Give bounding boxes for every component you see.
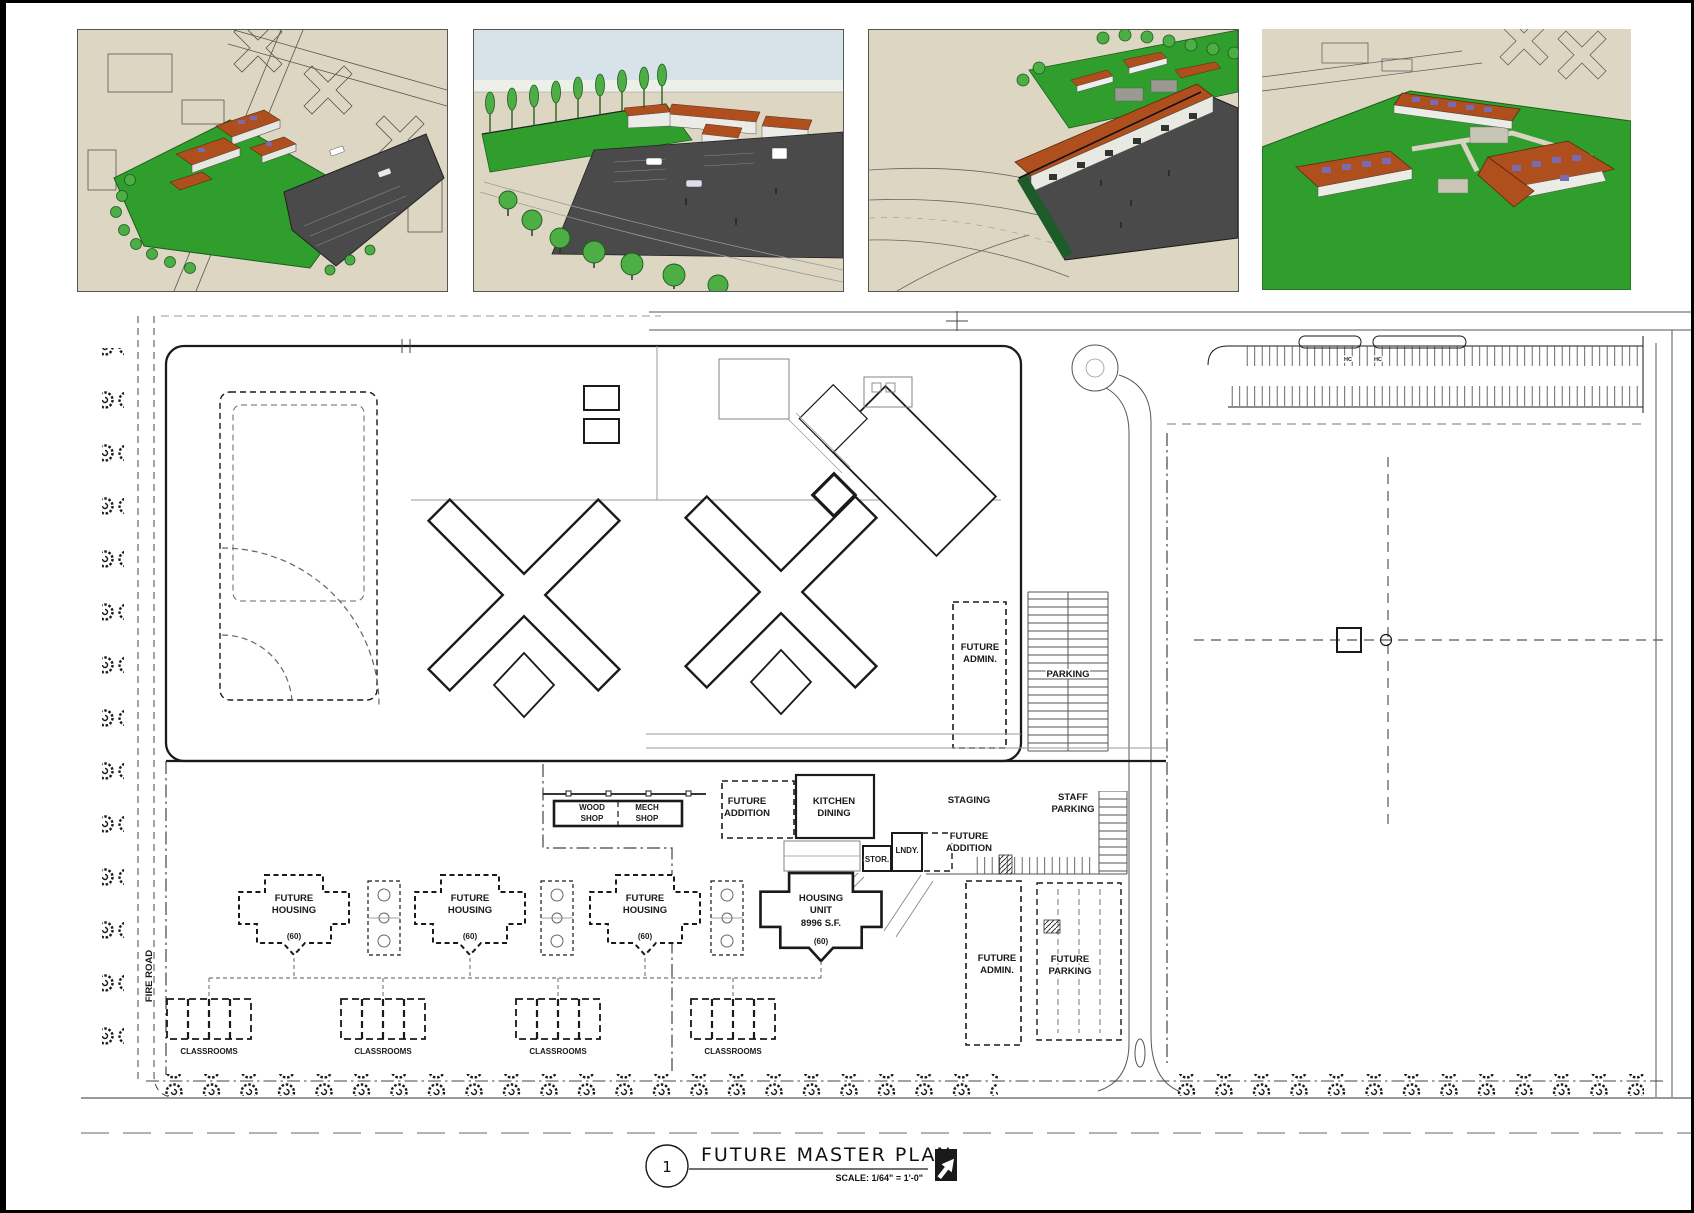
label-classrooms-2: CLASSROOMS <box>354 1047 412 1056</box>
label-wood-shop: WOOD <box>579 803 605 812</box>
parking-lot <box>552 132 843 258</box>
label-future-admin-south: FUTURE <box>978 953 1017 964</box>
label-housing-unit-area: 8996 S.F. <box>801 918 841 929</box>
label-future-housing-3: HOUSING <box>623 905 667 916</box>
classroom-building <box>167 999 251 1039</box>
render-view-street-level <box>473 29 844 292</box>
housing-x-building <box>354 425 693 764</box>
label-handicap-stall: HC <box>1374 357 1382 363</box>
outbuilding <box>584 386 619 410</box>
title-block: 1 FUTURE MASTER PLAN SCALE: 1/64" = 1'-0… <box>646 1144 959 1187</box>
walkways <box>209 958 821 999</box>
label-staff-parking: STAFF <box>1058 792 1088 803</box>
label-classrooms-1: CLASSROOMS <box>180 1047 238 1056</box>
label-staff-parking: PARKING <box>1051 804 1094 815</box>
label-future-housing-2: FUTURE <box>451 893 490 904</box>
label-capacity: (60) <box>638 932 653 941</box>
shops-building <box>543 791 706 826</box>
drawing-sheet: FUTURE ADMIN. PARKING WOOD SHOP MECH SHO… <box>0 0 1694 1213</box>
traffic-island <box>1135 1039 1145 1067</box>
label-future-admin: ADMIN. <box>963 654 997 665</box>
survey-mark <box>946 311 968 331</box>
outbuilding <box>584 419 619 443</box>
label-future-addition: FUTURE <box>728 796 767 807</box>
label-housing-unit: UNIT <box>810 905 832 916</box>
plan-labels: FUTURE ADMIN. PARKING WOOD SHOP MECH SHO… <box>144 357 1382 1056</box>
court-2 <box>1438 179 1468 193</box>
label-mech-shop: SHOP <box>636 814 659 823</box>
label-storage: STOR. <box>865 855 889 864</box>
label-kitchen-dining: DINING <box>817 808 850 819</box>
label-capacity: (60) <box>814 937 829 946</box>
staff-parking-stalls <box>1099 791 1127 874</box>
drawing-title: FUTURE MASTER PLAN <box>701 1144 953 1166</box>
basketball-court <box>711 881 743 955</box>
classroom-building <box>341 999 425 1039</box>
label-future-parking: PARKING <box>1048 966 1091 977</box>
label-kitchen-dining: KITCHEN <box>813 796 855 807</box>
label-future-admin: FUTURE <box>961 642 1000 653</box>
label-fire-road: FIRE ROAD <box>144 950 155 1002</box>
label-future-addition: ADDITION <box>724 808 770 819</box>
housing-unit-building <box>761 873 882 961</box>
roundabout <box>1072 345 1118 391</box>
label-wood-shop: SHOP <box>581 814 604 823</box>
label-capacity: (60) <box>287 932 302 941</box>
label-future-housing-3: FUTURE <box>626 893 665 904</box>
sheet-number: 1 <box>662 1158 672 1176</box>
label-future-addition-2: FUTURE <box>950 831 989 842</box>
label-future-housing-2: HOUSING <box>448 905 492 916</box>
label-future-housing-1: FUTURE <box>275 893 314 904</box>
staging-parking-strip <box>926 855 1127 874</box>
label-classrooms-3: CLASSROOMS <box>529 1047 587 1056</box>
render-view-aerial-overview <box>77 29 448 292</box>
right-field <box>1167 433 1666 1063</box>
basketball-court <box>541 881 573 955</box>
label-future-admin-south: ADMIN. <box>980 965 1014 976</box>
label-housing-unit: HOUSING <box>799 893 843 904</box>
north-arrow-icon <box>934 1149 959 1182</box>
label-staging: STAGING <box>948 795 991 806</box>
site-plan: FUTURE ADMIN. PARKING WOOD SHOP MECH SHO… <box>6 303 1694 1213</box>
top-parking-lot <box>1167 336 1643 424</box>
basketball-court <box>368 881 400 955</box>
drawing-scale: SCALE: 1/64" = 1'-0" <box>836 1173 923 1183</box>
label-handicap-stall: HC <box>1344 357 1352 363</box>
label-parking: PARKING <box>1046 669 1089 680</box>
label-future-housing-1: HOUSING <box>272 905 316 916</box>
label-laundry: LNDY. <box>895 846 918 855</box>
court <box>1470 127 1508 143</box>
future-admin-area <box>953 602 1006 748</box>
label-classrooms-4: CLASSROOMS <box>704 1047 762 1056</box>
label-capacity: (60) <box>463 932 478 941</box>
recreation-field <box>220 392 379 705</box>
label-mech-shop: MECH <box>635 803 659 812</box>
context-line-art <box>1262 29 1606 91</box>
render-view-aerial-road <box>868 29 1239 292</box>
classroom-building <box>516 999 600 1039</box>
render-view-aerial-close <box>1262 29 1631 290</box>
classroom-building <box>691 999 775 1039</box>
label-future-addition-2: ADDITION <box>946 843 992 854</box>
label-future-parking: FUTURE <box>1051 954 1090 965</box>
secure-compound <box>166 339 1108 765</box>
